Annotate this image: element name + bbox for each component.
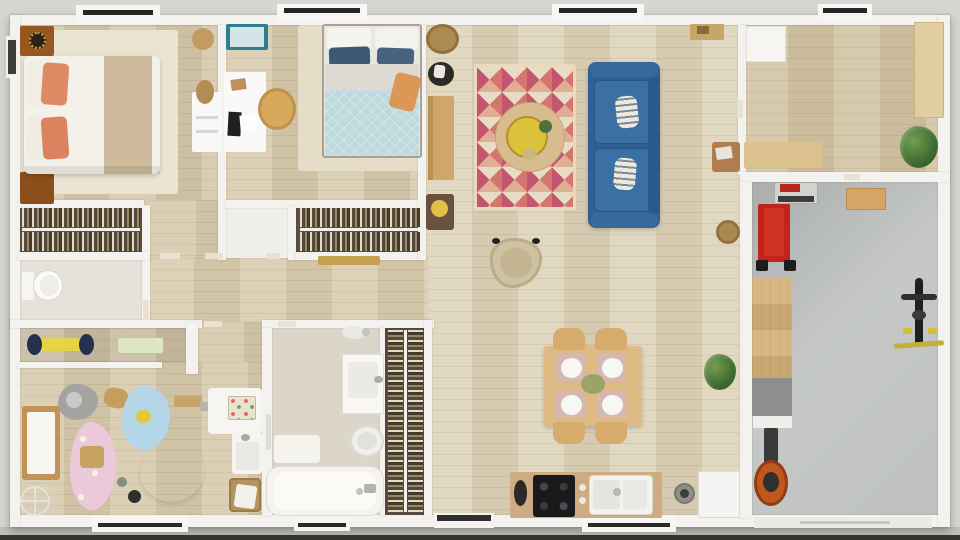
window-bottom-3-bar: [588, 523, 670, 527]
toy-roller-end-1: [27, 334, 42, 355]
garage-workbench: [752, 278, 792, 378]
office-papers: [230, 78, 246, 91]
garage-cabinet-gray: [752, 378, 792, 416]
plate-1: [561, 358, 582, 378]
master-side-table: [192, 28, 214, 50]
closet2-rail: [300, 228, 420, 231]
dining-chair-1: [553, 328, 585, 350]
entry-tall-cabinet: [914, 22, 944, 118]
rattan-armchair-seat: [500, 248, 532, 278]
back-door-threshold: [437, 515, 491, 521]
sofa-backrest: [648, 78, 660, 214]
wall-closet2-left: [288, 206, 296, 260]
tv-console-edge: [428, 96, 433, 180]
garage-sawbench-rail: [778, 196, 814, 202]
toy-train: [174, 396, 202, 407]
closet3-rail: [404, 330, 407, 512]
window-top-2-bar: [284, 8, 360, 13]
backdrop-bottom-edge: [0, 535, 960, 540]
towel-rail: [266, 414, 271, 450]
entry-cabinet-top: [746, 26, 786, 62]
master-pillow-coral-2: [41, 116, 70, 160]
toy-roller-end-2: [79, 334, 94, 355]
office-stool-rattan: [258, 88, 296, 130]
armchair-knob-right: [532, 238, 540, 244]
master-pillow-coral-1: [41, 62, 70, 106]
red-tool-cart-panel: [764, 208, 784, 256]
window-bottom-1-bar: [98, 523, 182, 527]
wall-board-screen: [230, 27, 264, 47]
bathtub-faucet: [364, 484, 376, 493]
plate-3: [561, 395, 582, 415]
kids-corridor-floor: [198, 322, 264, 366]
kitchen-cabinet-white: [698, 471, 740, 518]
window-top-1-bar: [83, 10, 153, 15]
mower-engine: [763, 472, 779, 492]
closet2-bench: [318, 256, 380, 265]
door-master: [160, 253, 180, 259]
garage-shelf-white: [753, 416, 792, 428]
wire-ball-cross-h: [20, 500, 50, 502]
laundry-sink-basin: [236, 442, 259, 470]
bike-pedal-2: [928, 328, 937, 334]
door-entry: [737, 100, 743, 118]
utensil-holder: [514, 480, 527, 506]
toy-ball-small: [117, 477, 127, 487]
closet2-clothes-row2: [300, 232, 420, 251]
sofa-armrest-top: [590, 62, 658, 78]
lamp-master: [29, 32, 46, 49]
closet1-rail: [22, 228, 140, 231]
lamp-shade-yellow: [431, 200, 448, 217]
garage-door-line: [800, 521, 890, 524]
entry-bench: [744, 142, 822, 168]
garage-sawbench-red: [780, 184, 800, 192]
bike-handlebar: [901, 294, 937, 300]
wall-bedroom2-bottom: [226, 200, 422, 208]
office-paper2: [239, 114, 257, 130]
bed2-pillow-navy-2: [377, 47, 415, 65]
closet2-clothes-row1: [300, 208, 420, 227]
plate-2: [602, 358, 623, 378]
door-bedroom2: [205, 253, 223, 259]
sink-faucet: [613, 488, 621, 496]
toilet-seat: [40, 275, 59, 296]
closet3-clothes-col2: [408, 330, 423, 512]
nightstand-bottom-left: [20, 172, 54, 204]
wall-left: [10, 15, 20, 527]
window-left-glass: [8, 40, 16, 74]
elephant-toy-ear: [66, 392, 82, 408]
laundry-basket-ring: [357, 432, 377, 450]
sofa-pillow-1: [614, 95, 639, 129]
toy-xylophone: [117, 337, 164, 354]
entry-wall-stool-items: [715, 146, 733, 160]
closet1-clothes-row2: [22, 232, 140, 251]
bath-mat: [274, 435, 320, 463]
wicker-basket-towels: [234, 484, 258, 510]
pink-rug-star-2: [92, 470, 98, 476]
coffee-table-plant: [539, 120, 552, 133]
closet1-clothes-row1: [22, 208, 140, 227]
living-stool-cup: [433, 64, 445, 78]
closet3-clothes-col1: [388, 330, 403, 512]
upper-corridor-floor: [150, 200, 222, 260]
laundry-sink-faucet: [241, 434, 250, 441]
cart-wheel-1: [756, 260, 768, 271]
plate-4: [602, 395, 623, 415]
wall-dining-left: [424, 320, 432, 518]
sink-basin-2: [623, 480, 647, 509]
wall-garage-left: [740, 182, 752, 518]
window-top-3-bar: [559, 8, 637, 13]
dining-chair-2: [595, 328, 627, 350]
master-bed-foot-shadow: [24, 166, 160, 174]
wall-closet1-bottom: [18, 252, 150, 260]
door-kids: [204, 321, 222, 327]
dining-chair-4: [595, 422, 627, 444]
master-desk-drawer-2: [196, 130, 218, 133]
hallway-floor: [148, 258, 428, 322]
cooktop: [533, 475, 575, 517]
table-centerpiece: [581, 374, 605, 394]
kitchen-pot-lid: [680, 489, 689, 498]
door-closet2: [266, 253, 280, 259]
cart-wheel-2: [784, 260, 796, 271]
bike-pedal-1: [903, 328, 912, 334]
pink-rug-star-1: [80, 436, 86, 442]
living-console-deco: [697, 26, 709, 34]
cardboard-mat: [846, 188, 886, 210]
living-tray-basket: [426, 24, 459, 54]
wall-kids-stub: [186, 322, 198, 374]
cooktop-knob-2: [579, 497, 586, 504]
toy-basket: [80, 446, 104, 468]
door-bathroom: [278, 321, 296, 327]
changing-pad: [228, 396, 256, 420]
crib-mattress: [27, 412, 55, 474]
coffee-table-deco: [522, 148, 537, 160]
window-bottom-2-bar: [298, 523, 346, 527]
master-desk-drawer-1: [196, 116, 218, 119]
master-bed-throw: [104, 56, 152, 174]
master-basket: [196, 80, 214, 104]
sofa-pillow-2: [613, 157, 638, 191]
wall-south-hall-a: [10, 320, 202, 328]
toy-duck: [136, 410, 151, 423]
vanity-faucet: [374, 376, 383, 383]
armchair-knob-left: [492, 238, 500, 244]
bike-seat: [912, 310, 926, 320]
bathtub-drain: [356, 488, 363, 495]
door-garage: [844, 174, 860, 180]
floorplan-canvas: [0, 0, 960, 540]
door-toilet: [143, 300, 149, 320]
wall-kids-strip: [18, 362, 162, 368]
sofa-armrest-bottom: [590, 212, 658, 228]
toy-ball-dark: [128, 490, 141, 503]
shower-knob: [362, 328, 370, 336]
living-basket-2: [716, 220, 740, 244]
pink-rug-star-3: [78, 494, 84, 500]
window-top-4-bar: [823, 8, 867, 13]
cooktop-knob-1: [579, 484, 586, 491]
teepee-mat: [140, 440, 204, 502]
dining-chair-3: [553, 422, 585, 444]
